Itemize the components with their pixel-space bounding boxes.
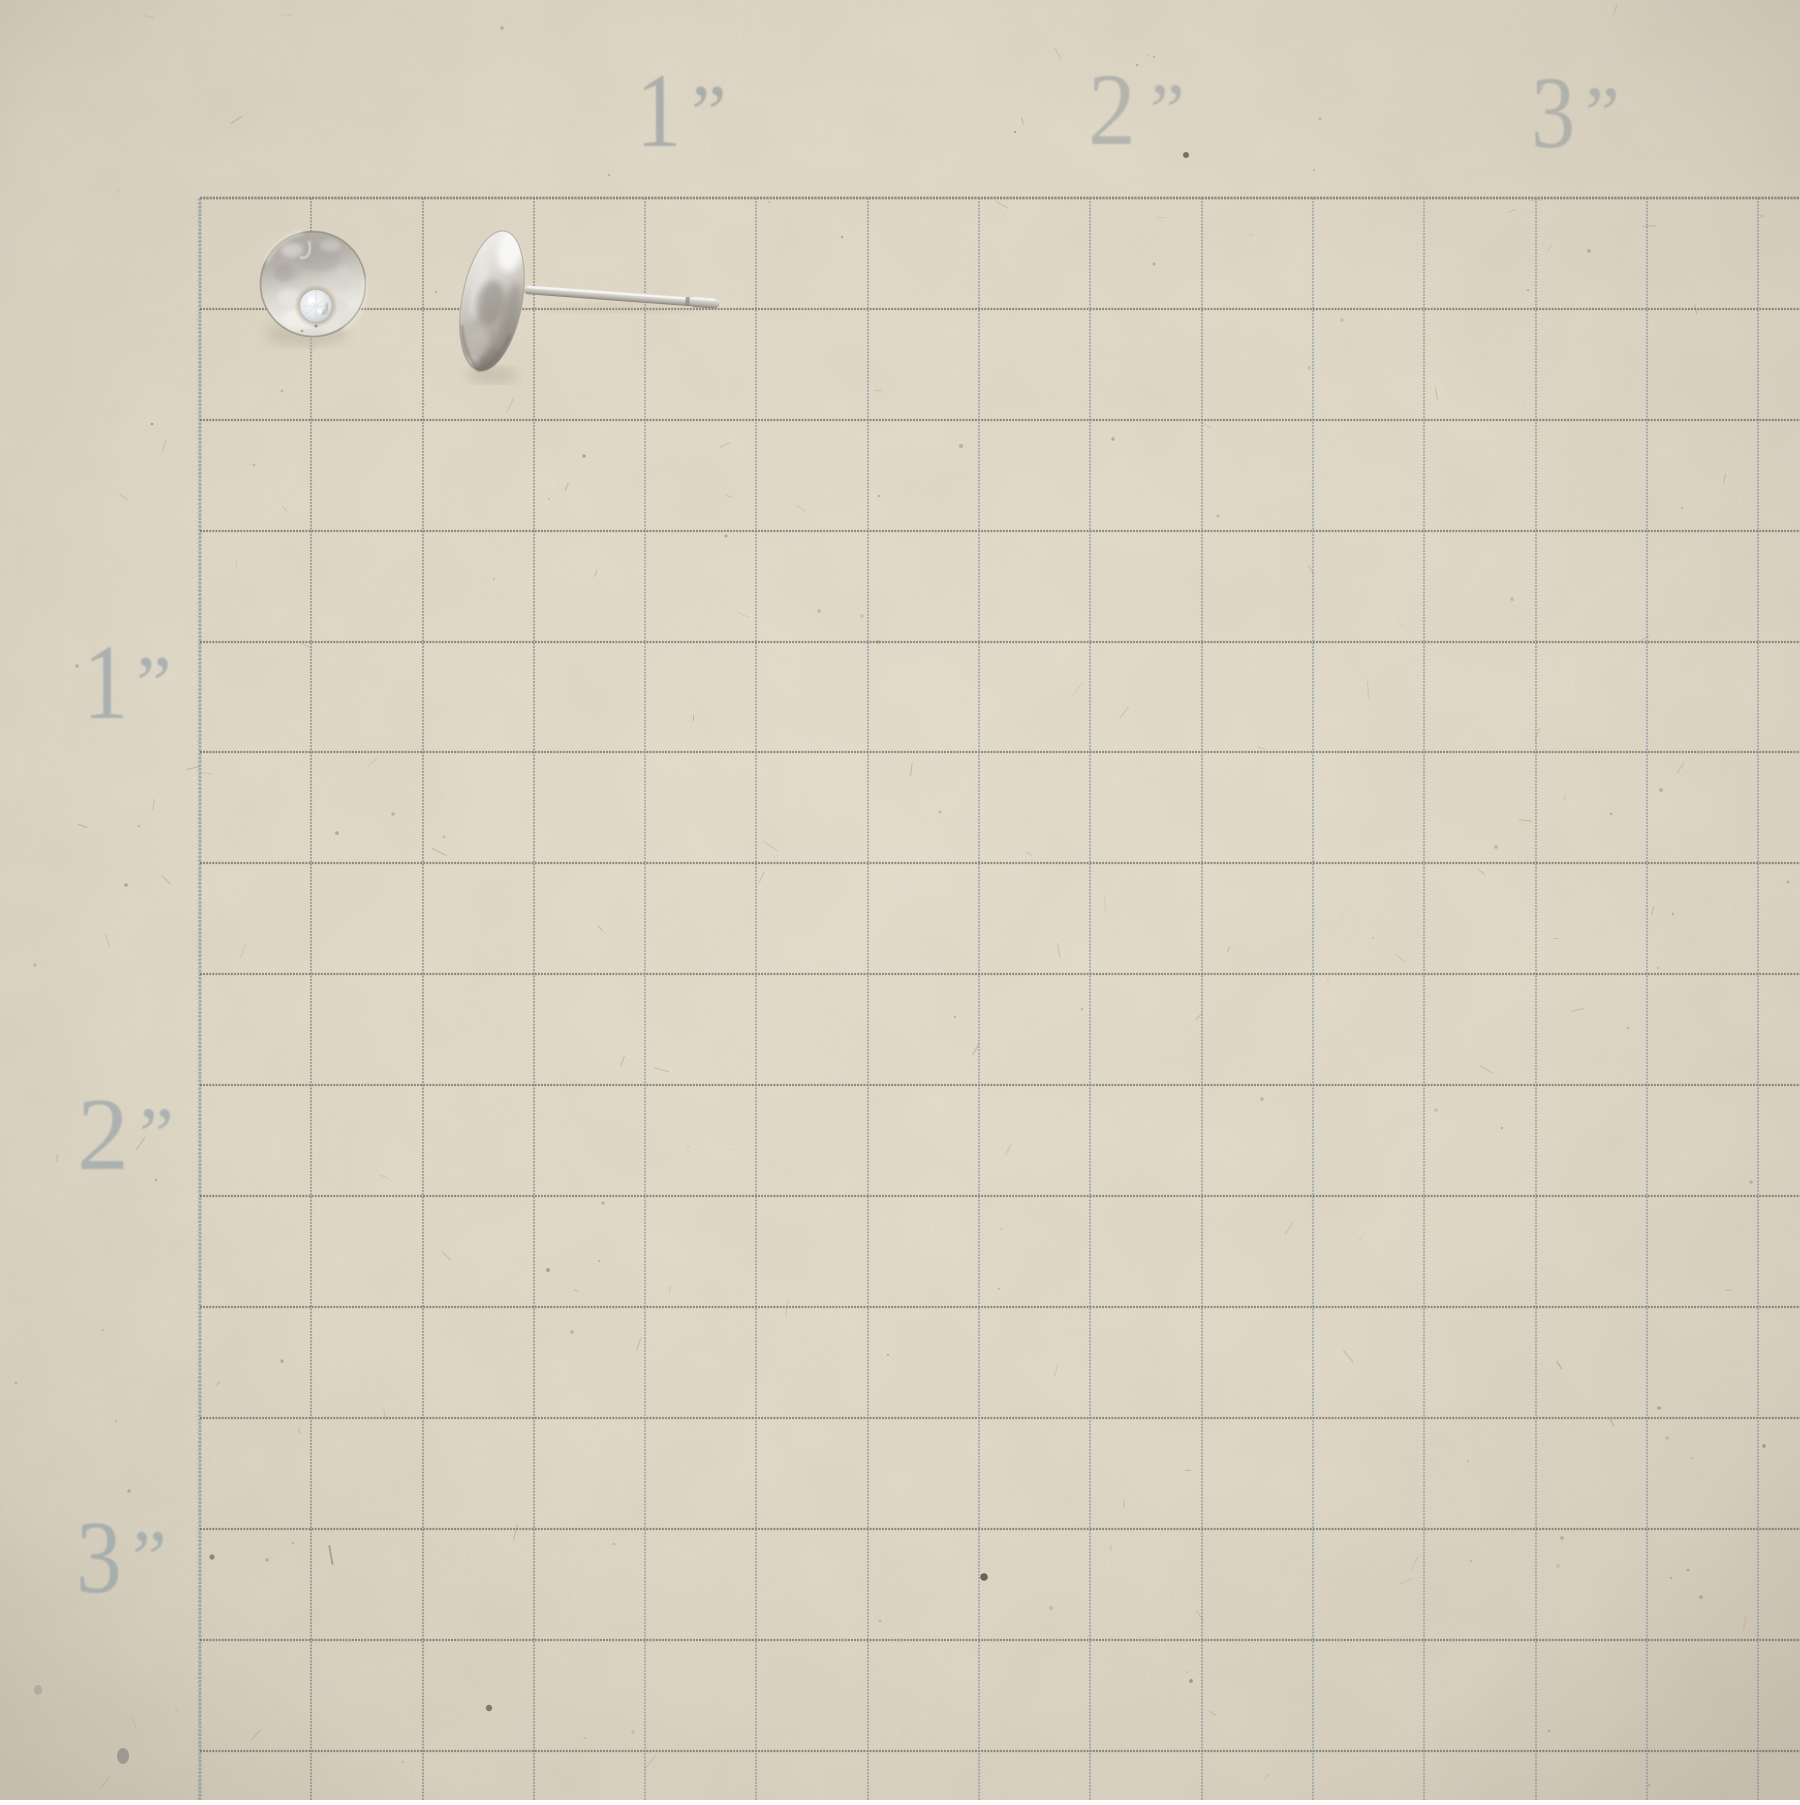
svg-text:2: 2 [1088, 52, 1136, 167]
svg-text:1: 1 [83, 624, 128, 741]
svg-text:”: ” [691, 70, 727, 158]
svg-text:”: ” [132, 1514, 167, 1601]
svg-text:3: 3 [76, 1501, 122, 1616]
svg-text:”: ” [136, 641, 172, 729]
svg-text:”: ” [1150, 67, 1185, 154]
svg-text:”: ” [1585, 70, 1620, 157]
svg-text:1: 1 [636, 52, 681, 169]
svg-text:2: 2 [77, 1077, 129, 1192]
svg-text:3: 3 [1531, 55, 1575, 170]
svg-text:”: ” [139, 1091, 174, 1178]
